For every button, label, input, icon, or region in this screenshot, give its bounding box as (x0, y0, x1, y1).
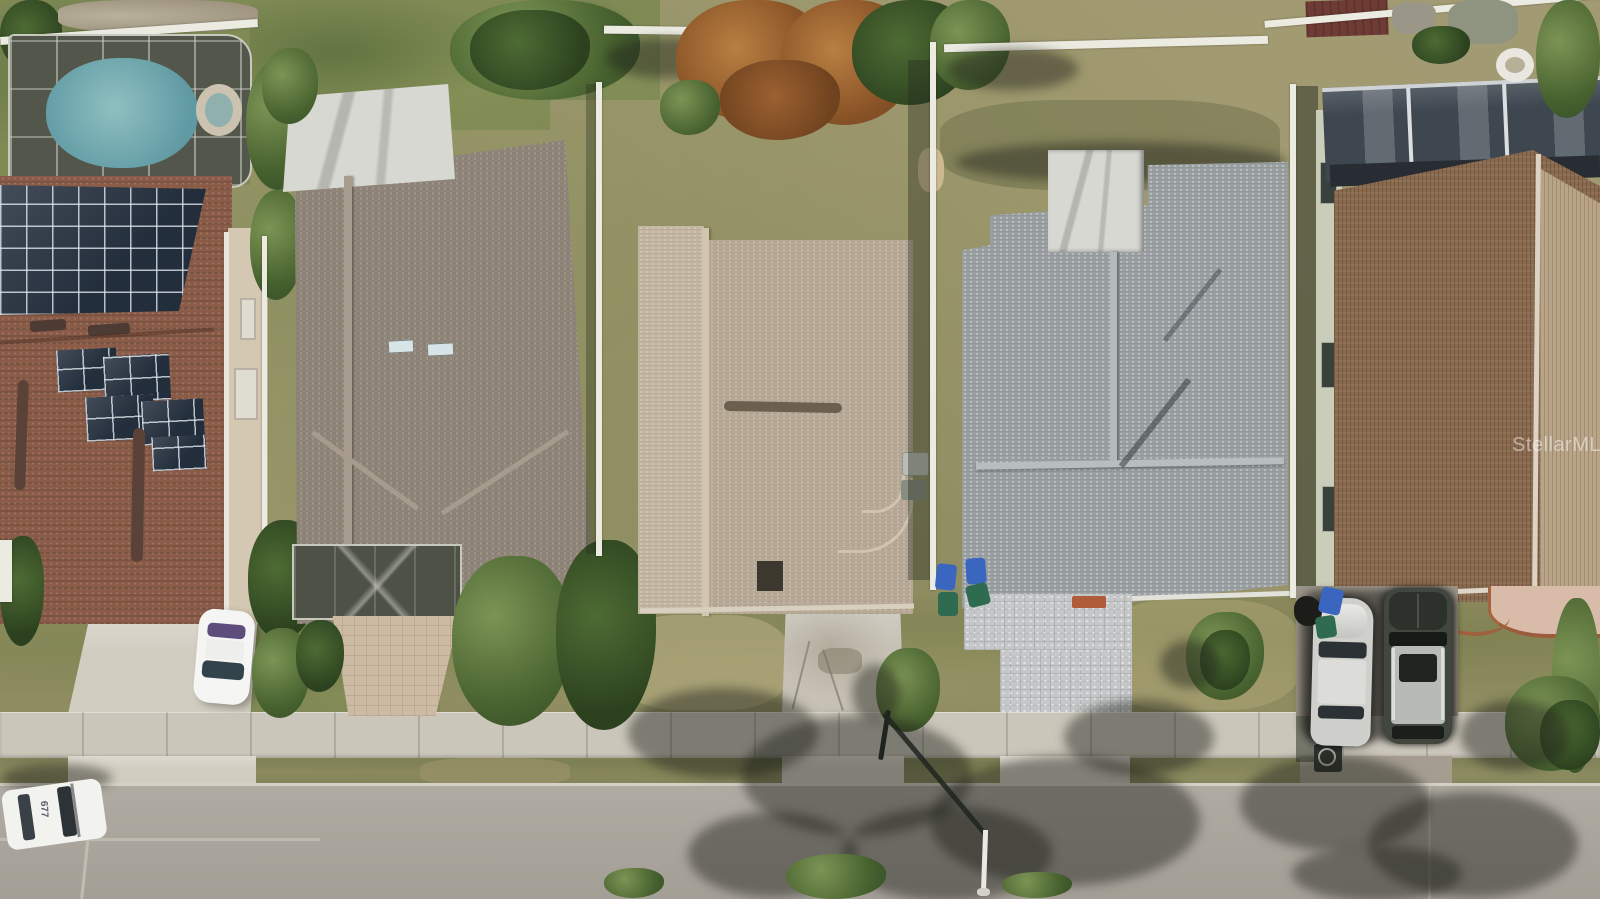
tree-shadow (1292, 846, 1462, 899)
ridge-cap (1110, 252, 1117, 466)
suv-windshield (1389, 632, 1447, 646)
trash-bin-green (1315, 615, 1338, 640)
patio-table (1496, 48, 1534, 82)
fascia-line (224, 232, 229, 622)
fence-segment (0, 540, 12, 602)
car-rear-window (1318, 705, 1364, 719)
ridge-cap (131, 428, 145, 562)
driveway-stain (818, 648, 862, 674)
suv-rear-window (1392, 726, 1444, 739)
tan-roof-left-wing (638, 226, 704, 614)
screened-porch-roof (292, 544, 462, 620)
pole-base (977, 888, 990, 896)
tree-shadow (1064, 700, 1214, 775)
tree-shadow (1160, 640, 1220, 688)
tree-shadow (1460, 700, 1570, 770)
ridge-vent (724, 401, 842, 413)
suv-roof-rail (1441, 648, 1444, 720)
swimming-pool (46, 58, 198, 168)
skylight (388, 339, 415, 353)
car-roof (1317, 659, 1366, 704)
solar-panel-array-large (0, 181, 208, 315)
police-car: 677 (0, 765, 113, 859)
window-frame (234, 368, 258, 420)
brown-roof-right-plane (1540, 164, 1600, 602)
police-roof-number: 677 (38, 801, 50, 818)
side-fence (262, 236, 267, 566)
dark-suv (1384, 588, 1456, 748)
car-windshield (201, 660, 244, 681)
tree-shadow (852, 664, 900, 722)
garage-shadow-notch (757, 561, 783, 591)
suv-roof-rail (1392, 648, 1395, 720)
fence-shadow (908, 60, 930, 580)
skylight (427, 342, 455, 356)
tan-roof-main (709, 240, 913, 614)
fence-shadow (586, 84, 596, 554)
car-body (1, 778, 108, 851)
trash-bin-blue (935, 563, 958, 591)
solar-panel-cluster (151, 435, 207, 472)
side-fence (930, 42, 936, 590)
doormat (1072, 596, 1106, 608)
car-windshield (1318, 641, 1366, 658)
trash-bin-green (938, 592, 958, 616)
window-frame (240, 298, 256, 340)
aerial-neighborhood-photo: 677 StellarMLS (0, 0, 1600, 899)
shrub-shadow (948, 48, 1078, 90)
suv-hood-line (1417, 594, 1419, 628)
spa-hot-tub (196, 84, 242, 136)
verge-dirt-patch (420, 758, 570, 786)
trash-bin-blue (965, 557, 987, 584)
suv-sunroof (1399, 654, 1437, 682)
stellar-mls-watermark: StellarMLS (1512, 434, 1600, 457)
side-fence (596, 82, 602, 556)
flat-white-roof (1048, 150, 1144, 252)
white-sedan (192, 608, 260, 711)
car-roof (205, 638, 245, 661)
ridge-cap (702, 228, 709, 616)
